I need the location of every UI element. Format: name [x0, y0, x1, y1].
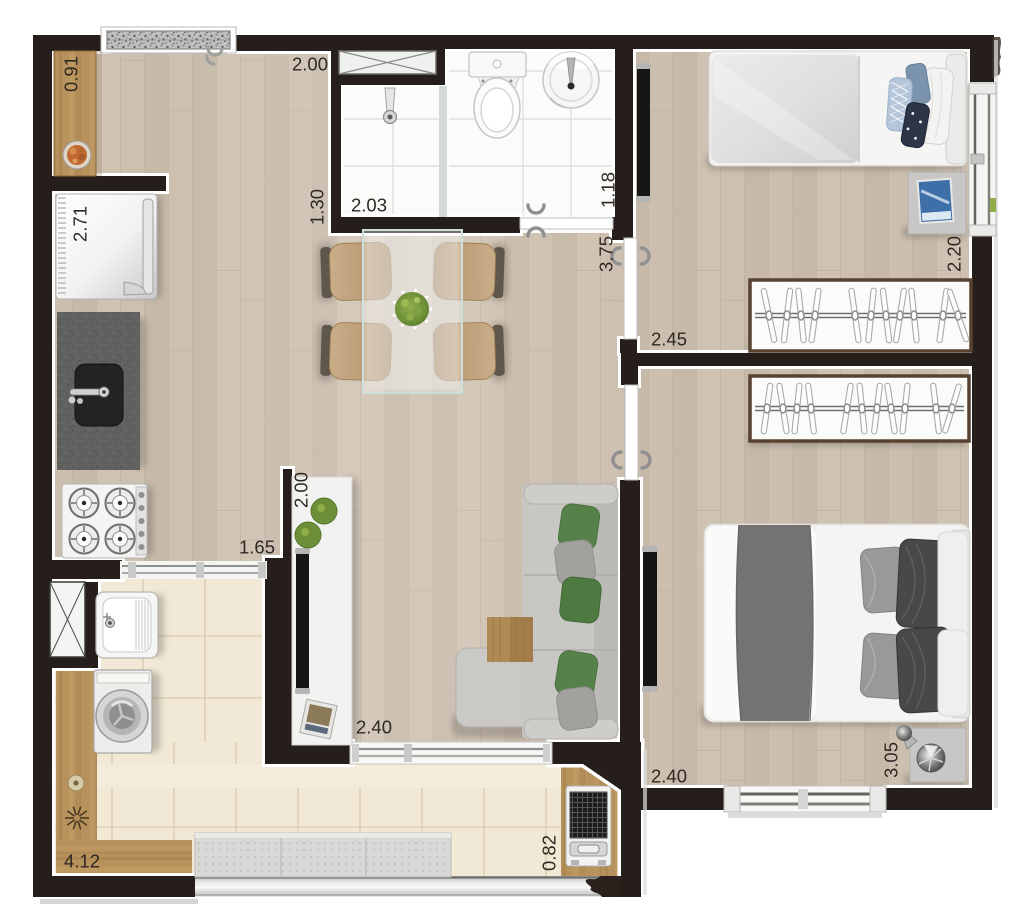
svg-text:1.65: 1.65 — [239, 537, 275, 558]
svg-text:4.12: 4.12 — [64, 851, 100, 872]
svg-text:2.40: 2.40 — [651, 766, 687, 787]
svg-text:3.05: 3.05 — [881, 742, 902, 778]
svg-text:2.71: 2.71 — [70, 206, 91, 242]
svg-text:2.45: 2.45 — [651, 329, 687, 350]
svg-text:2.00: 2.00 — [292, 54, 328, 75]
svg-text:1.30: 1.30 — [307, 189, 328, 225]
svg-text:2.00: 2.00 — [291, 472, 312, 508]
svg-text:2.03: 2.03 — [351, 195, 387, 216]
svg-text:3.75: 3.75 — [596, 236, 617, 272]
svg-text:2.40: 2.40 — [356, 717, 392, 738]
svg-text:1.18: 1.18 — [598, 172, 619, 208]
svg-text:0.82: 0.82 — [539, 835, 560, 871]
svg-text:2.20: 2.20 — [944, 236, 965, 272]
svg-text:0.91: 0.91 — [61, 56, 82, 92]
